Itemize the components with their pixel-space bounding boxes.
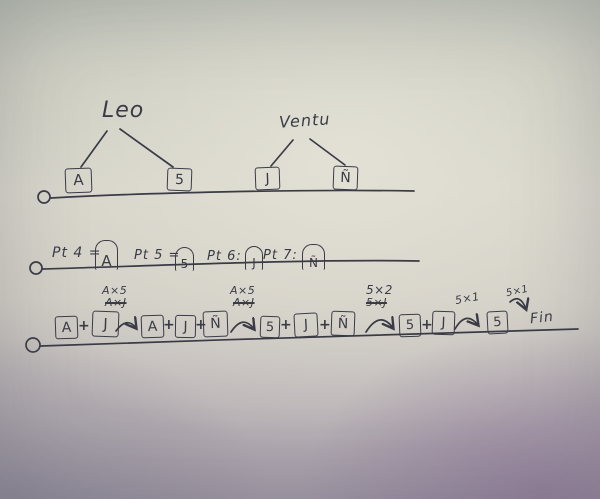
step-arrow-4 [455, 318, 478, 329]
baseline-1 [51, 190, 414, 198]
plus-sign: + [319, 317, 331, 333]
sequence-term-box: J [92, 311, 120, 338]
tree-node-j: J [255, 167, 281, 191]
definition-prefix-2: Pt 5 = [134, 248, 180, 263]
definition-value-1: A [95, 240, 118, 270]
definition-value-3: J [245, 246, 263, 270]
paper-photo: Leo Ventu A 5 J Ñ Pt 4 = A Pt 5 = 5 Pt 6… [0, 0, 600, 499]
baseline-ring-3 [26, 338, 40, 352]
definition-prefix-3: Pt 6: [207, 249, 242, 264]
definition-value-2: 5 [175, 247, 194, 271]
tree-node-a: A [65, 168, 93, 194]
definition-prefix-4: Pt 7: [263, 248, 298, 263]
step-arrow-5 [510, 299, 526, 309]
tree-edge-ventu-j [271, 140, 293, 166]
tree-node-5: 5 [167, 168, 193, 192]
plus-sign: + [78, 318, 90, 334]
sequence-term-box: A [55, 316, 79, 340]
sequence-term-box: A [141, 315, 165, 339]
tree-edge-ventu-n [310, 139, 345, 165]
annotation-kept-3: 5×2 [366, 283, 393, 297]
plus-sign: + [163, 317, 175, 333]
tree-node-n: Ñ [333, 166, 359, 191]
sequence-term-box: Ñ [331, 311, 356, 337]
step-arrow-2 [231, 322, 254, 332]
sequence-end-label: Fin [529, 309, 554, 327]
annotation-crossed-1: A×J [105, 296, 127, 309]
annotation-crossed-3: 5×J [366, 296, 387, 309]
sequence-term-box: J [175, 315, 196, 338]
plus-sign: + [280, 317, 292, 333]
baseline-ring-1 [38, 191, 50, 203]
sequence-term-box: 5 [399, 314, 422, 338]
definition-value-4: Ñ [302, 244, 325, 270]
sequence-term-box: 5 [260, 316, 281, 339]
tree-edge-leo-a [81, 131, 107, 167]
tree-label-ventu: Ventu [278, 109, 331, 132]
sequence-term-box: 5 [486, 310, 508, 334]
baseline-ring-2 [30, 262, 42, 274]
sequence-term-box: Ñ [203, 311, 229, 338]
sequence-term-box: J [432, 311, 456, 336]
tree-edge-leo-5 [120, 129, 173, 167]
annotation-crossed-2: A×J [233, 296, 255, 309]
step-arrow-3 [366, 320, 393, 332]
sequence-term-box: J [293, 312, 318, 337]
tree-label-leo: Leo [102, 98, 144, 123]
